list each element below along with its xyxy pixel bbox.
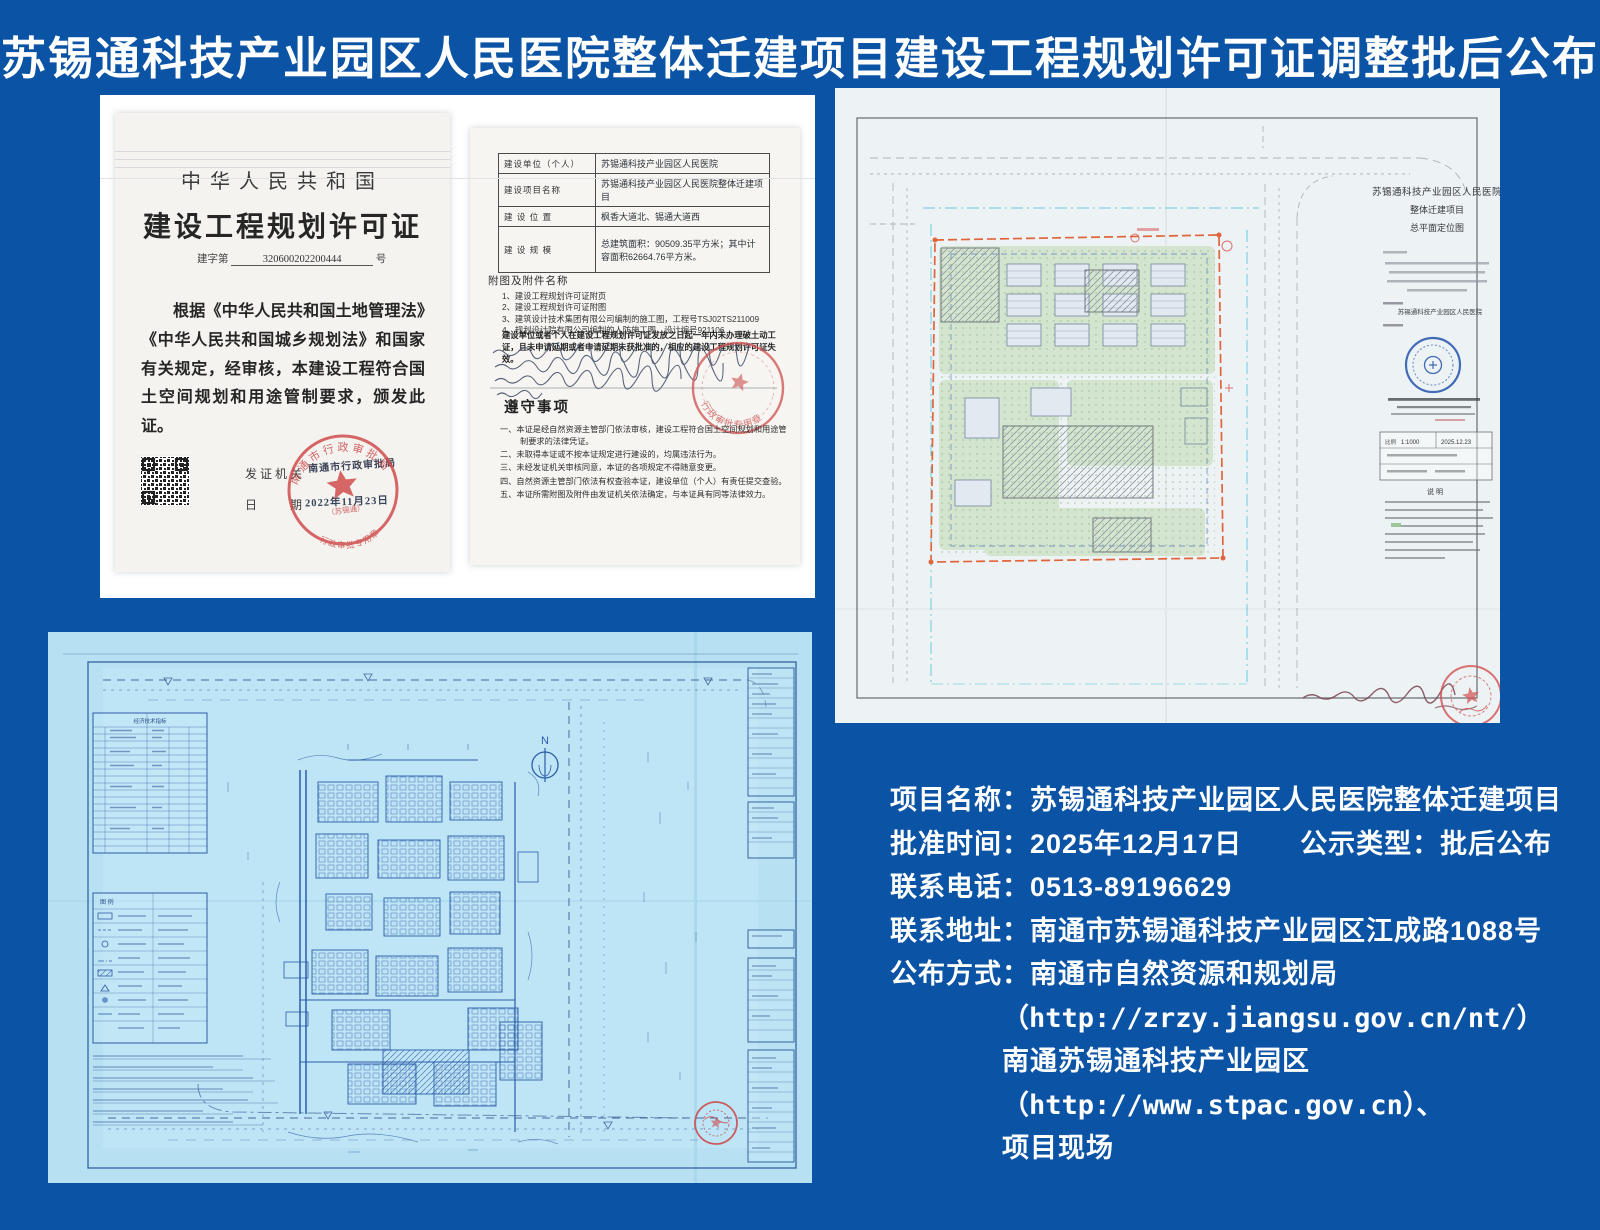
publish-url: （http://zrzy.jiangsu.gov.cn/nt/） <box>1002 1003 1544 1034</box>
certificate-number-prefix: 建字第 <box>197 254 229 265</box>
certificate-detail-page: 建设单位（个人） 苏锡通科技产业园区人民医院 建设项目名称 苏锡通科技产业园区人… <box>470 128 800 565</box>
publish-url: （http://www.stpac.gov.cn）、 <box>1002 1090 1443 1121</box>
siteplan-unit-value: 苏锡通科技产业园区人民医院 <box>1398 307 1483 316</box>
siteplan-panel: 苏锡通科技产业园区人民医院 整体迁建项目 总平面定位图 苏锡通科技产业园区人民医… <box>835 88 1500 723</box>
econ-table-title: 经济技术指标 <box>133 717 167 725</box>
info-value: 2025年12月17日 <box>1030 829 1242 859</box>
rule-item: 三、未经发证机关审核同意，本证的各项规定不得随意变更。 <box>500 462 788 474</box>
info-label: 公布方式： <box>890 959 1030 989</box>
attachments-title: 附图及附件名称 <box>488 273 569 288</box>
project-info: 项目名称：苏锡通科技产业园区人民医院整体迁建项目 批准时间：2025年12月17… <box>890 779 1562 1171</box>
certificate-number: 320600202200444 <box>231 254 373 266</box>
siteplan-drawing: 苏锡通科技产业园区人民医院 整体迁建项目 总平面定位图 苏锡通科技产业园区人民医… <box>835 88 1500 723</box>
rules-title: 遵守事项 <box>504 396 570 417</box>
info-label: 项目名称： <box>890 785 1030 815</box>
qr-code <box>139 455 191 507</box>
blueprint-drawing: N 经济技术指标 图 例 <box>48 632 812 1183</box>
info-value: 0513-89196629 <box>1030 872 1232 902</box>
notes-title: 说 明 <box>1427 487 1443 496</box>
row-label: 建设单位（个人） <box>499 154 596 174</box>
info-line-site: 项目现场 <box>890 1127 1562 1171</box>
certificate-number-row: 建字第 320600202200444 号 <box>197 251 386 266</box>
announcement-page: 苏锡通科技产业园区人民医院整体迁建项目建设工程规划许可证调整批后公布 中华人民共… <box>0 0 1600 1230</box>
siteplan-title-line2: 整体迁建项目 <box>1410 204 1464 215</box>
info-line-url-2: （http://www.stpac.gov.cn）、 <box>890 1084 1562 1128</box>
certificate-detail-table: 建设单位（个人） 苏锡通科技产业园区人民医院 建设项目名称 苏锡通科技产业园区人… <box>498 153 770 273</box>
info-line-approval: 批准时间：2025年12月17日公示类型：批后公布 <box>890 823 1562 867</box>
info-line-park: 南通苏锡通科技产业园区 <box>890 1040 1562 1084</box>
official-red-seal: 南通市行政审批局 行政审批专用章 （苏锡通） <box>278 425 408 555</box>
legend-block: 图 例 <box>93 893 207 1043</box>
rule-item: 四、自然资源主管部门依法有权查验本证，建设单位（个人）有责任提交查验。 <box>500 476 788 488</box>
certificate-cover-page: 中华人民共和国 建设工程规划许可证 建字第 320600202200444 号 … <box>115 113 450 572</box>
info-value: 苏锡通科技产业园区人民医院整体迁建项目 <box>1030 785 1562 815</box>
row-value: 总建筑面积：90509.35平方米；其中计容面积62664.76平方米。 <box>596 227 770 273</box>
info-line-project-name: 项目名称：苏锡通科技产业园区人民医院整体迁建项目 <box>890 779 1562 823</box>
info-value: 批后公布 <box>1440 829 1552 859</box>
rule-item: 一、本证是经自然资源主管部门依法审核，建设工程符合国土空间规划和用途管制要求的法… <box>500 424 788 448</box>
info-label: 批准时间： <box>890 829 1030 859</box>
seal-sub-text: （苏锡通） <box>327 502 366 517</box>
legend-title: 图 例 <box>100 898 114 906</box>
certificate-number-suffix: 号 <box>376 254 387 265</box>
nation-heading: 中华人民共和国 <box>115 165 450 194</box>
info-value: 项目现场 <box>1002 1133 1114 1163</box>
scale-table: 比例 1:1000 2025.12.23 <box>1380 432 1492 480</box>
certificate-title: 建设工程规划许可证 <box>115 205 450 245</box>
attachment-item: 3、建筑设计技术集团有限公司编制的施工图，工程号TSJ02TS211009 <box>502 314 787 325</box>
blueprint-panel: N 经济技术指标 图 例 <box>48 632 812 1183</box>
info-line-address: 联系地址：南通市苏锡通科技产业园区江成路1088号 <box>890 910 1562 954</box>
row-value: 苏锡通科技产业园区人民医院 <box>596 154 770 174</box>
info-line-phone: 联系电话：0513-89196629 <box>890 866 1562 910</box>
info-line-publish-method: 公布方式：南通市自然资源和规划局 <box>890 953 1562 997</box>
info-label: 公示类型： <box>1300 829 1440 859</box>
info-value: 南通市苏锡通科技产业园区江成路1088号 <box>1030 916 1542 946</box>
attachment-item: 1、建设工程规划许可证附页 <box>502 291 787 302</box>
rule-item: 二、未取得本证或不按本证规定进行建设的，均属违法行为。 <box>500 449 788 461</box>
row-label: 建 设 规 模 <box>499 227 596 273</box>
certificate-panel: 中华人民共和国 建设工程规划许可证 建字第 320600202200444 号 … <box>100 95 815 598</box>
siteplan-title-line1: 苏锡通科技产业园区人民医院 <box>1372 186 1500 198</box>
north-label: N <box>541 735 549 747</box>
econ-table: 经济技术指标 <box>93 713 207 853</box>
scale-value: 1:1000 <box>1401 440 1420 446</box>
rules-list: 一、本证是经自然资源主管部门依法审核，建设工程符合国土空间规划和用途管制要求的法… <box>500 424 788 502</box>
row-label: 建 设 位 置 <box>499 207 596 227</box>
seal-bottom-text: 行政审批专用章 <box>317 526 383 554</box>
attachment-item: 2、建设工程规划许可证附图 <box>502 302 787 313</box>
info-label: 联系电话： <box>890 872 1030 902</box>
row-value: 枫香大道北、锡通大道西 <box>596 207 770 227</box>
svg-text:行政审批专用章: 行政审批专用章 <box>317 526 383 554</box>
rule-item: 五、本证所需附图及附件由发证机关依法确定，与本证具有同等法律效力。 <box>500 489 788 501</box>
info-value: 南通苏锡通科技产业园区 <box>1002 1046 1310 1076</box>
info-value: 南通市自然资源和规划局 <box>1030 959 1338 989</box>
drawing-date: 2025.12.23 <box>1441 440 1472 446</box>
certificate-body-text: 根据《中华人民共和国土地管理法》《中华人民共和国城乡规划法》和国家有关规定，经审… <box>141 298 425 442</box>
info-line-url-1: （http://zrzy.jiangsu.gov.cn/nt/） <box>890 997 1562 1041</box>
siteplan-title-line3: 总平面定位图 <box>1410 222 1464 233</box>
info-label: 联系地址： <box>890 916 1030 946</box>
scale-label: 比例 <box>1385 438 1397 446</box>
scan-artifact-line <box>100 178 815 179</box>
page-title: 苏锡通科技产业园区人民医院整体迁建项目建设工程规划许可证调整批后公布 <box>0 22 1600 87</box>
